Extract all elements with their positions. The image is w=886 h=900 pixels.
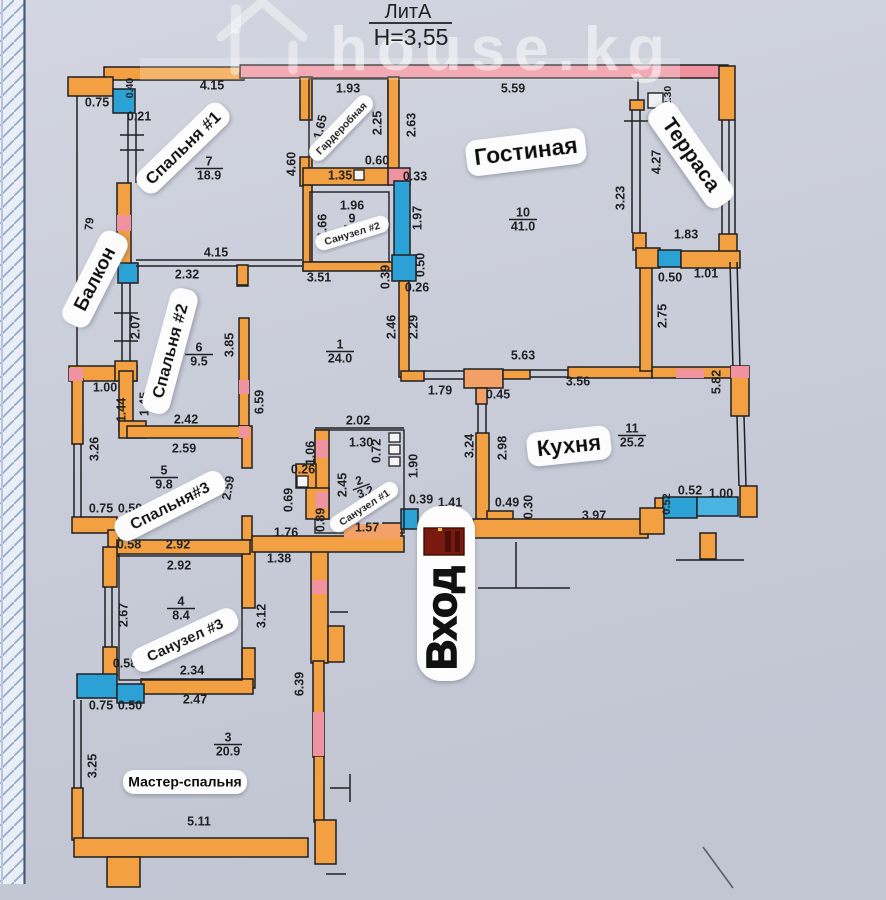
svg-text:1.96: 1.96 bbox=[340, 198, 364, 212]
svg-text:3: 3 bbox=[225, 730, 232, 744]
svg-text:2.29: 2.29 bbox=[406, 315, 420, 339]
svg-text:41.0: 41.0 bbox=[511, 219, 535, 233]
svg-text:0.30: 0.30 bbox=[521, 495, 535, 519]
svg-text:2.32: 2.32 bbox=[175, 267, 199, 281]
svg-text:8.4: 8.4 bbox=[172, 608, 189, 622]
svg-text:1.79: 1.79 bbox=[428, 383, 452, 397]
svg-text:ЛитА: ЛитА bbox=[385, 1, 432, 23]
svg-text:9.5: 9.5 bbox=[190, 354, 207, 368]
svg-text:4.15: 4.15 bbox=[200, 78, 224, 92]
svg-text:18.9: 18.9 bbox=[197, 168, 221, 182]
svg-text:3.51: 3.51 bbox=[307, 270, 331, 284]
svg-text:1.35: 1.35 bbox=[328, 168, 352, 182]
svg-text:1.83: 1.83 bbox=[674, 227, 698, 241]
svg-text:Вход: Вход bbox=[418, 566, 465, 670]
svg-text:Н=3,55: Н=3,55 bbox=[374, 24, 449, 50]
svg-text:3.85: 3.85 bbox=[222, 333, 236, 357]
svg-text:2.02: 2.02 bbox=[346, 413, 370, 427]
svg-text:0.33: 0.33 bbox=[403, 169, 427, 183]
svg-text:2.25: 2.25 bbox=[370, 111, 384, 135]
svg-text:0.89: 0.89 bbox=[313, 508, 327, 532]
svg-text:0.39: 0.39 bbox=[409, 492, 433, 506]
svg-text:7: 7 bbox=[206, 154, 213, 168]
svg-text:20.9: 20.9 bbox=[216, 744, 240, 758]
svg-text:1.97: 1.97 bbox=[410, 206, 424, 230]
svg-text:0.21: 0.21 bbox=[127, 109, 151, 123]
svg-text:5.63: 5.63 bbox=[511, 348, 535, 362]
svg-text:2.92: 2.92 bbox=[167, 558, 191, 572]
svg-text:2.34: 2.34 bbox=[180, 663, 204, 677]
svg-text:2.45: 2.45 bbox=[335, 473, 349, 497]
svg-text:2.92: 2.92 bbox=[166, 537, 190, 551]
svg-text:1.38: 1.38 bbox=[267, 551, 291, 565]
svg-text:10: 10 bbox=[516, 205, 530, 219]
svg-text:4.15: 4.15 bbox=[204, 245, 228, 259]
svg-text:0.50: 0.50 bbox=[118, 698, 142, 712]
svg-text:4.60: 4.60 bbox=[284, 152, 298, 176]
svg-text:1.57: 1.57 bbox=[355, 520, 379, 534]
svg-text:1: 1 bbox=[337, 337, 344, 351]
svg-text:0.26: 0.26 bbox=[291, 462, 315, 476]
svg-text:2.67: 2.67 bbox=[116, 603, 130, 627]
svg-text:2.07: 2.07 bbox=[128, 315, 142, 339]
svg-text:24.0: 24.0 bbox=[328, 351, 352, 365]
svg-text:1.00: 1.00 bbox=[709, 486, 733, 500]
svg-text:6.39: 6.39 bbox=[292, 672, 306, 696]
svg-text:11: 11 bbox=[625, 421, 638, 435]
svg-text:6: 6 bbox=[196, 340, 203, 354]
svg-text:0.60: 0.60 bbox=[365, 153, 389, 167]
svg-text:3.56: 3.56 bbox=[566, 374, 590, 388]
svg-text:2.42: 2.42 bbox=[174, 412, 198, 426]
svg-text:2.75: 2.75 bbox=[655, 304, 669, 328]
svg-text:1.01: 1.01 bbox=[694, 266, 718, 280]
svg-text:1.00: 1.00 bbox=[93, 380, 117, 394]
svg-text:3.23: 3.23 bbox=[613, 186, 627, 210]
svg-text:2.47: 2.47 bbox=[183, 692, 207, 706]
svg-text:2.59: 2.59 bbox=[172, 441, 196, 455]
svg-text:0.75: 0.75 bbox=[89, 501, 113, 515]
svg-text:3.12: 3.12 bbox=[254, 604, 268, 628]
svg-text:5: 5 bbox=[161, 463, 168, 477]
svg-text:0.50: 0.50 bbox=[413, 253, 427, 277]
svg-text:25.2: 25.2 bbox=[620, 435, 644, 449]
svg-text:3.26: 3.26 bbox=[87, 437, 101, 461]
svg-text:0.75: 0.75 bbox=[89, 698, 113, 712]
svg-text:0.50: 0.50 bbox=[658, 270, 682, 284]
svg-text:0.39: 0.39 bbox=[378, 265, 392, 289]
svg-text:2.98: 2.98 bbox=[495, 436, 509, 460]
svg-text:0.72: 0.72 bbox=[369, 439, 383, 463]
svg-text:9.8: 9.8 bbox=[155, 477, 172, 491]
svg-text:4: 4 bbox=[178, 594, 185, 608]
svg-text:5.11: 5.11 bbox=[187, 814, 211, 828]
svg-text:5.82: 5.82 bbox=[709, 370, 723, 394]
svg-text:0.75: 0.75 bbox=[85, 95, 109, 109]
svg-text:0.26: 0.26 bbox=[405, 280, 429, 294]
svg-text:0.52: 0.52 bbox=[678, 483, 702, 497]
svg-text:4.27: 4.27 bbox=[649, 150, 663, 174]
svg-text:1.44: 1.44 bbox=[114, 398, 128, 422]
svg-text:6.59: 6.59 bbox=[252, 390, 266, 414]
svg-text:79: 79 bbox=[83, 217, 96, 231]
svg-text:2.46: 2.46 bbox=[384, 315, 398, 339]
svg-text:0.69: 0.69 bbox=[281, 488, 295, 512]
svg-text:0.49: 0.49 bbox=[495, 495, 519, 509]
svg-text:0.45: 0.45 bbox=[486, 387, 510, 401]
svg-text:9: 9 bbox=[349, 211, 356, 225]
svg-text:1.90: 1.90 bbox=[406, 454, 420, 478]
svg-text:1.76: 1.76 bbox=[274, 525, 298, 539]
svg-text:3.24: 3.24 bbox=[462, 434, 476, 458]
svg-text:0.52: 0.52 bbox=[661, 493, 673, 514]
svg-text:3.25: 3.25 bbox=[85, 754, 99, 778]
svg-text:2.63: 2.63 bbox=[404, 113, 418, 137]
svg-text:Мастер-спальня: Мастер-спальня bbox=[128, 774, 241, 790]
svg-text:3.97: 3.97 bbox=[582, 508, 606, 522]
svg-text:0.40: 0.40 bbox=[124, 78, 136, 99]
